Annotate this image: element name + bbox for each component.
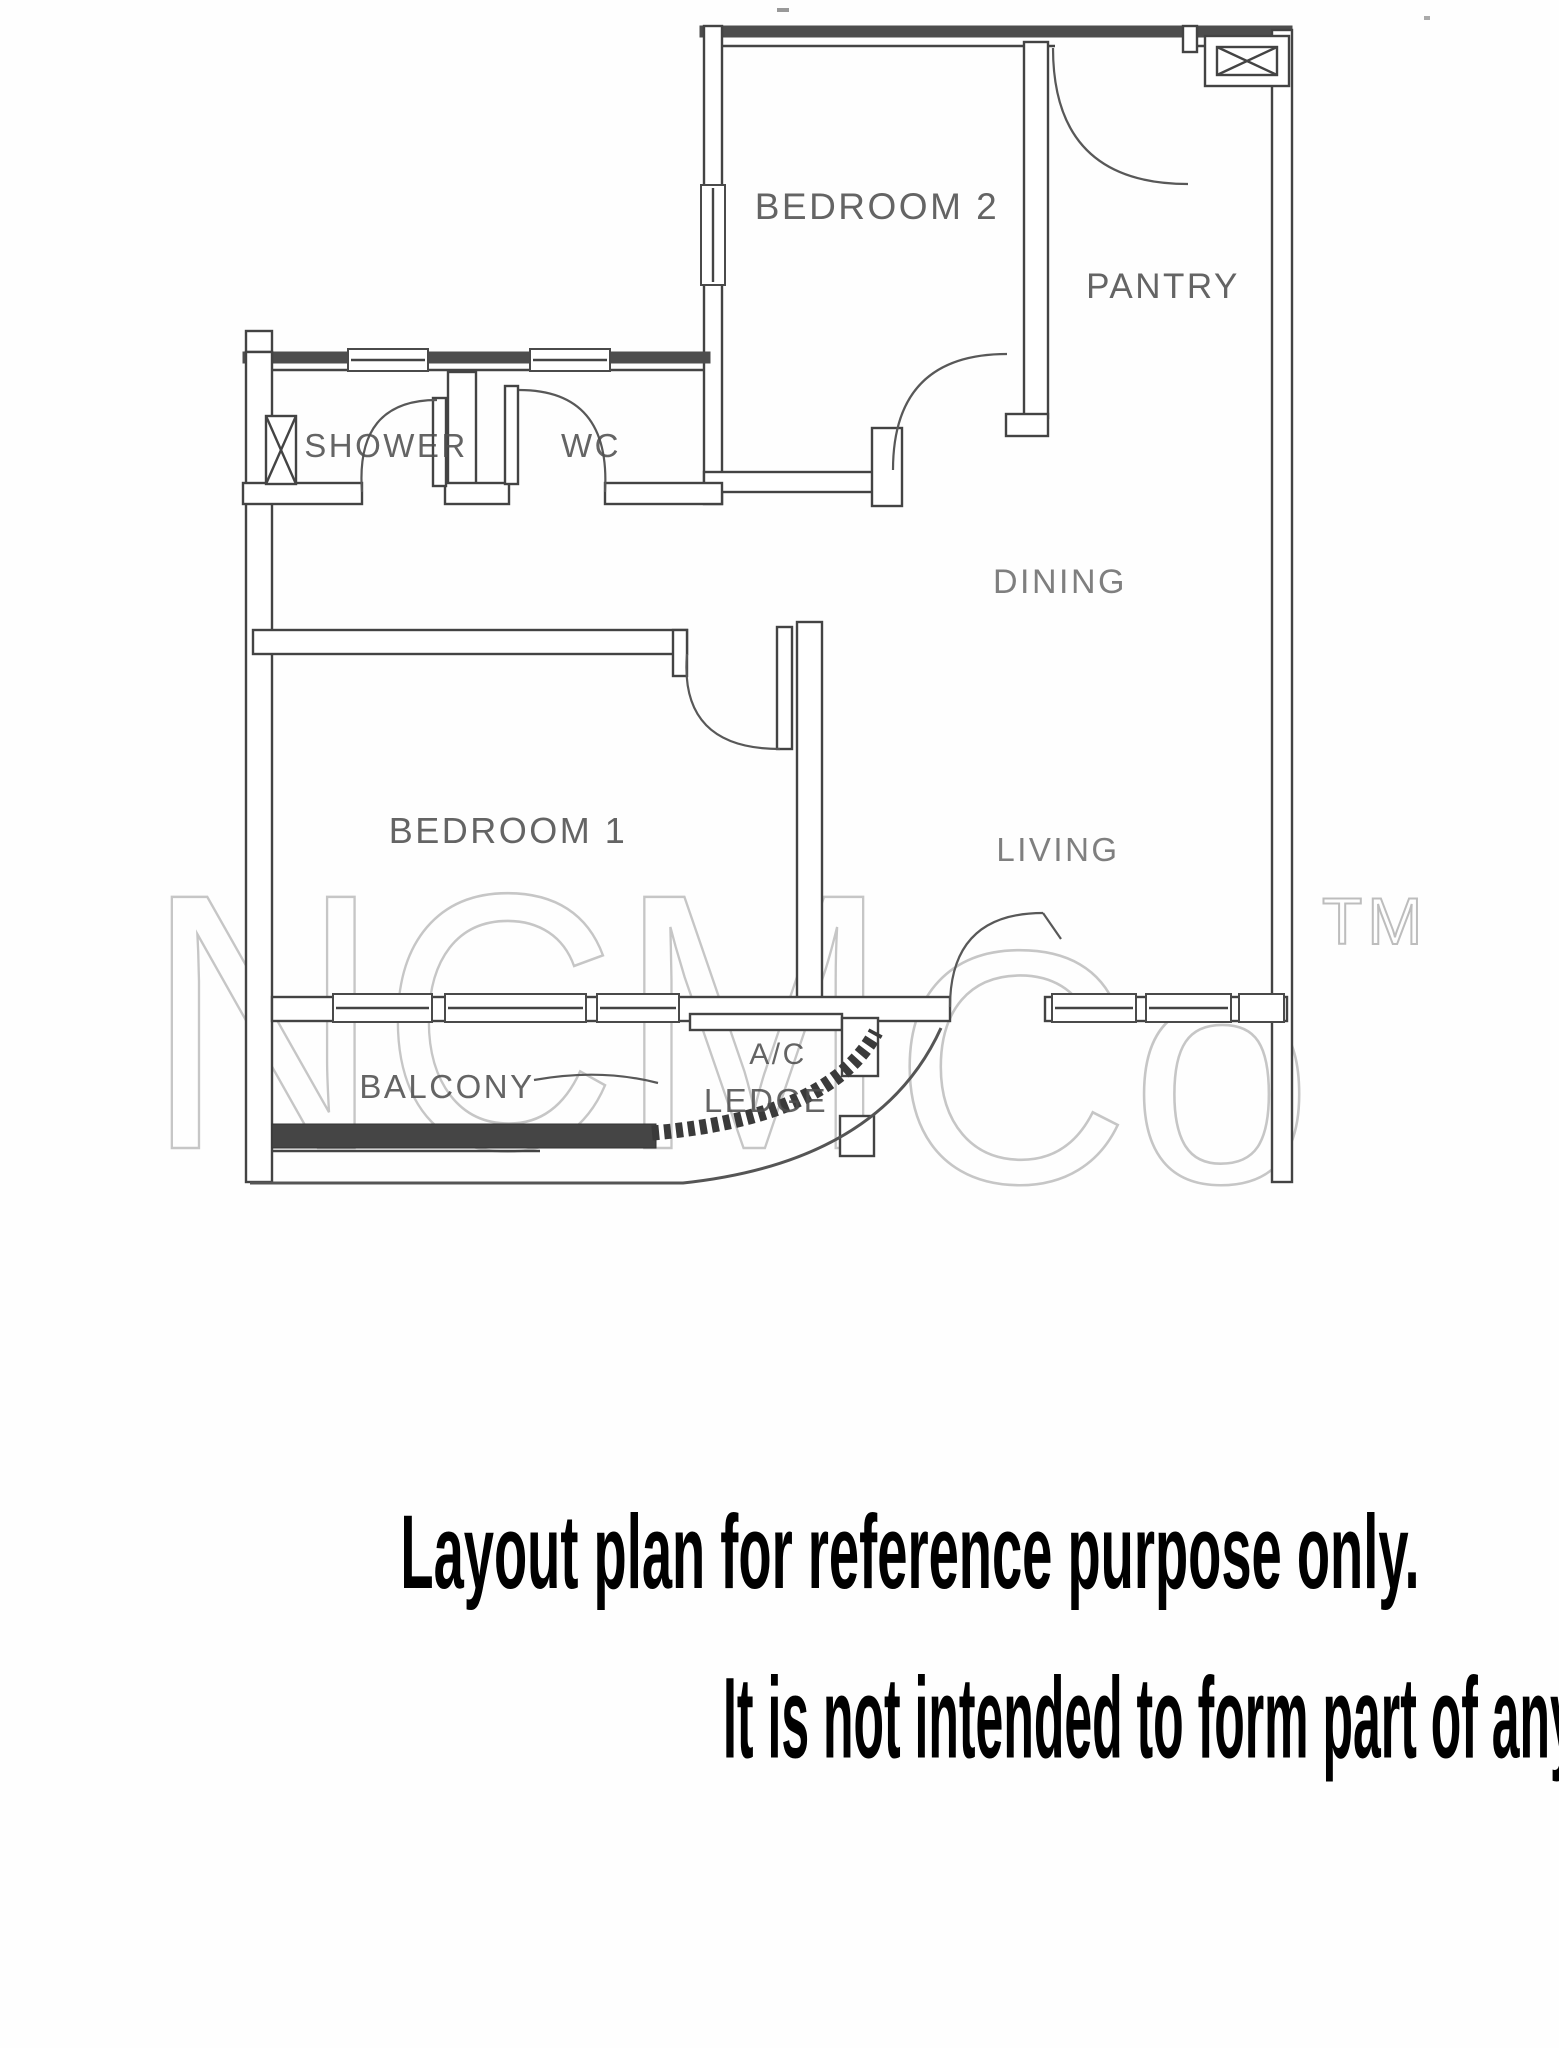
watermark-tm-mark: TM [1322, 884, 1427, 958]
wall-door-column [872, 428, 902, 506]
wall-living-divider [797, 622, 822, 1002]
door-arc [686, 654, 780, 749]
room-label-dining: DINING [993, 563, 1127, 601]
wall-divider-foot [1006, 414, 1048, 436]
room-label-bedroom1: BEDROOM 1 [389, 810, 628, 851]
wall-ac-ledge-inner [690, 1014, 842, 1030]
room-label-wc: WC [561, 427, 621, 464]
wall-bedroom1-door-jamb [673, 630, 687, 676]
wall-left-cap [246, 331, 272, 352]
room-label-bedroom2: BEDROOM 2 [755, 186, 1000, 227]
wall-balcony-parapet [272, 1124, 656, 1148]
wall-bedroom1-top [253, 630, 687, 654]
watermark-text-co: Co [893, 882, 1313, 1253]
wall-bath-top-outer [243, 352, 710, 363]
room-label-balcony: BALCONY [359, 1068, 534, 1105]
caption-line-1: Layout plan for reference purpose only. [0, 1492, 1559, 1604]
scan-speck [1424, 16, 1430, 20]
wall-pantry-door-jamb [1183, 26, 1197, 52]
watermark: NCM Co TM [145, 819, 1427, 1253]
room-label-ac-ledge: A/C [749, 1038, 807, 1071]
door-leaf [777, 627, 792, 749]
caption-line-1-text: Layout plan for reference purpose only. [400, 1492, 1419, 1613]
room-label-living: LIVING [996, 831, 1119, 868]
room-label-ac-ledge: LEDGE [704, 1082, 828, 1119]
scan-speck [777, 8, 789, 12]
wall-top-outer [700, 26, 1292, 37]
room-label-pantry: PANTRY [1086, 267, 1240, 306]
caption-line-2: It is not intended to form part of any c… [0, 1652, 1559, 1770]
door-arc [1053, 48, 1188, 184]
room-label-shower: SHOWER [304, 427, 468, 464]
door-arc [893, 354, 1007, 470]
wall-bath-bottom [445, 483, 509, 504]
wall-bath-bottom [605, 483, 722, 504]
wall-pantry-divider [1024, 42, 1048, 418]
wall-bath-bottom [243, 483, 362, 504]
wall-bedroom2-bottom [704, 472, 882, 492]
door-leaf [505, 386, 518, 484]
window-symbol [1239, 994, 1284, 1022]
caption-line-2-text: It is not intended to form part of any c… [723, 1652, 1559, 1784]
scanned-floor-plan-page: NCM Co TM [0, 0, 1559, 2048]
